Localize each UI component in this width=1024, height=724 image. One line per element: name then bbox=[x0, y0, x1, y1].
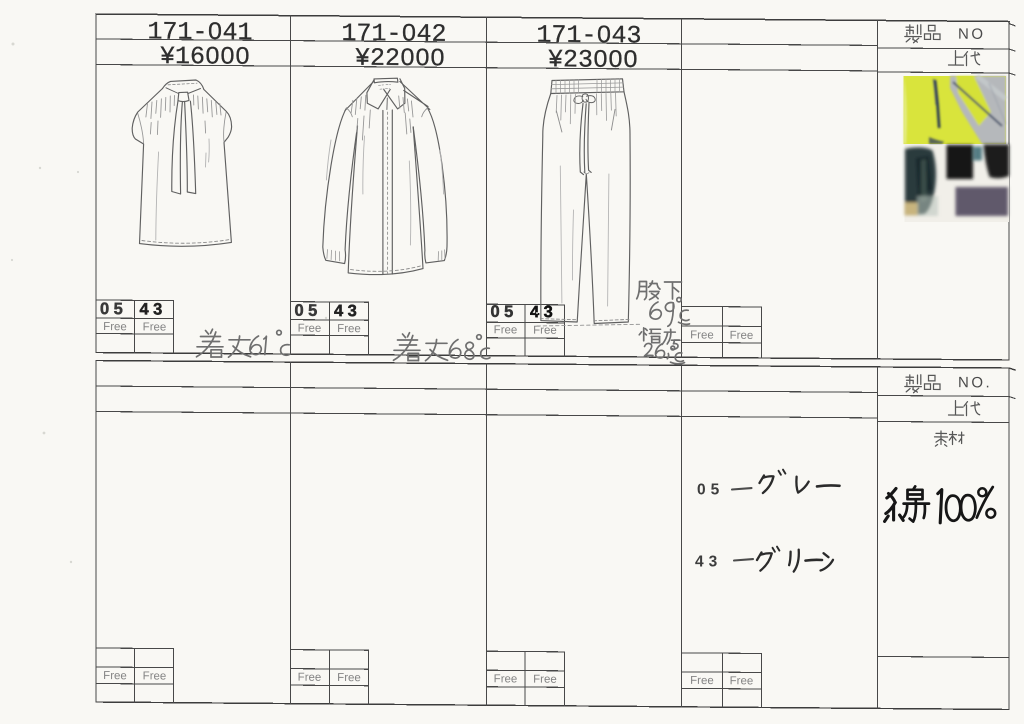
svg-text:Free: Free bbox=[143, 321, 167, 333]
svg-text:Free: Free bbox=[533, 674, 557, 686]
svg-text:05: 05 bbox=[295, 302, 322, 320]
svg-text:Free: Free bbox=[730, 675, 754, 687]
svg-text:43: 43 bbox=[140, 300, 167, 318]
svg-text:Free: Free bbox=[103, 321, 127, 333]
svg-text:NO: NO bbox=[958, 26, 986, 43]
svg-text:NO.: NO. bbox=[958, 374, 992, 391]
svg-text:05: 05 bbox=[697, 482, 724, 499]
svg-text:Free: Free bbox=[730, 330, 754, 342]
svg-text:¥23000: ¥23000 bbox=[548, 45, 638, 75]
svg-text:Free: Free bbox=[494, 324, 518, 336]
svg-text:Free: Free bbox=[690, 675, 714, 687]
svg-text:Free: Free bbox=[494, 673, 518, 685]
svg-text:Free: Free bbox=[143, 670, 167, 682]
svg-text:Free: Free bbox=[337, 672, 361, 684]
svg-text:¥22000: ¥22000 bbox=[355, 44, 445, 74]
svg-text:Free: Free bbox=[337, 323, 361, 335]
svg-text:Free: Free bbox=[298, 323, 322, 335]
svg-text:05: 05 bbox=[491, 303, 518, 321]
svg-text:Free: Free bbox=[690, 329, 714, 341]
svg-text:05: 05 bbox=[100, 300, 127, 318]
svg-text:Free: Free bbox=[298, 672, 322, 684]
svg-text:Free: Free bbox=[103, 670, 127, 682]
svg-text:Free: Free bbox=[533, 325, 557, 337]
svg-text:43: 43 bbox=[334, 302, 361, 320]
svg-text:¥16000: ¥16000 bbox=[160, 42, 250, 72]
svg-text:43: 43 bbox=[695, 554, 722, 571]
